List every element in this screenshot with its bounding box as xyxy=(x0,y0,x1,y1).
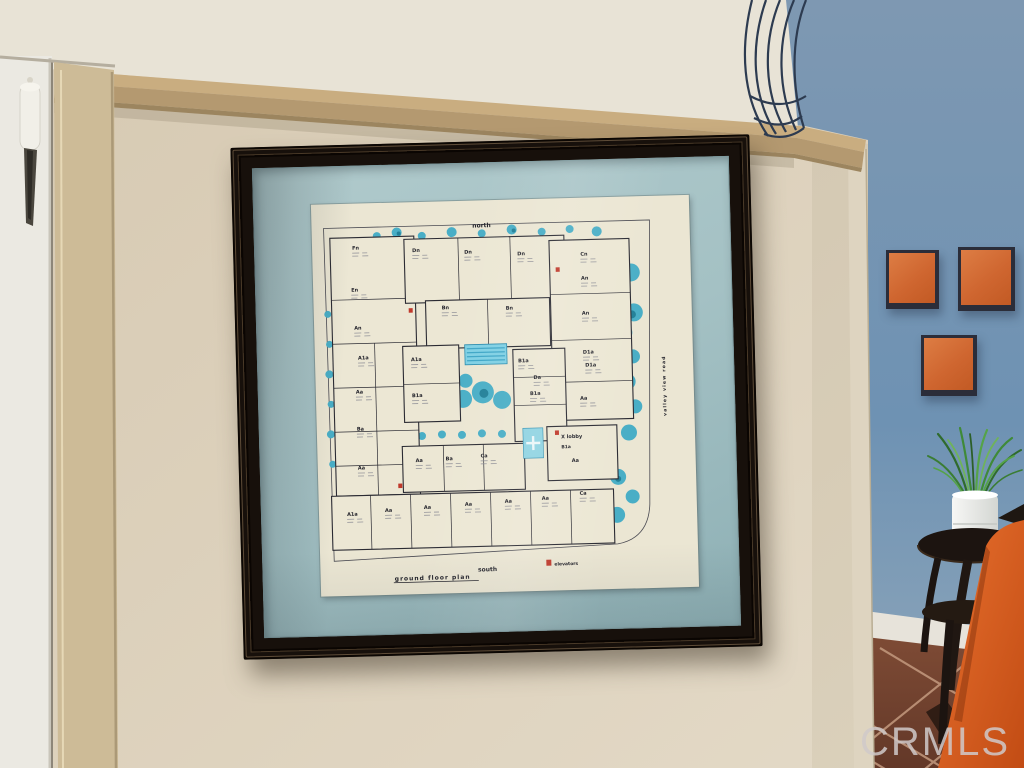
svg-text:Dn: Dn xyxy=(464,250,472,256)
svg-text:Ba: Ba xyxy=(357,426,364,432)
elevator-legend-icon xyxy=(546,560,551,566)
svg-text:Aa: Aa xyxy=(416,458,423,464)
svg-text:Cn: Cn xyxy=(580,252,588,258)
svg-text:An: An xyxy=(354,325,362,331)
svg-text:Ba: Ba xyxy=(446,456,453,462)
lobby-sub-label: B1a xyxy=(561,444,571,450)
elevator-icon xyxy=(556,267,560,272)
svg-text:Aa: Aa xyxy=(358,465,365,471)
svg-text:Fn: Fn xyxy=(352,246,360,252)
svg-text:Aa: Aa xyxy=(424,505,431,511)
framed-floor-plan: north south elevators ground floor plan … xyxy=(230,134,762,659)
courtyard xyxy=(523,428,544,459)
svg-text:D1a: D1a xyxy=(583,349,594,355)
svg-text:A1a: A1a xyxy=(347,512,358,518)
svg-text:B1a: B1a xyxy=(412,393,423,399)
svg-text:Bn: Bn xyxy=(442,305,450,311)
wall-art-orange-square-1 xyxy=(886,250,939,309)
elevator-icon xyxy=(555,430,559,435)
svg-text:Ca: Ca xyxy=(480,453,487,459)
svg-text:Bn: Bn xyxy=(506,306,514,312)
svg-text:Aa: Aa xyxy=(385,508,392,514)
svg-text:En: En xyxy=(351,288,359,294)
svg-text:B1a: B1a xyxy=(518,358,529,364)
svg-text:An: An xyxy=(582,311,590,317)
furniture-group xyxy=(860,400,1024,768)
door-frame xyxy=(54,62,118,768)
watermark: CRMLS xyxy=(860,720,1010,765)
svg-text:Aa: Aa xyxy=(542,496,549,502)
south-label: south xyxy=(478,566,497,573)
svg-text:A1a: A1a xyxy=(411,357,422,363)
svg-text:Aa: Aa xyxy=(505,499,512,505)
photo-scene: north south elevators ground floor plan … xyxy=(0,0,1024,768)
wall-art-orange-square-3 xyxy=(921,335,977,396)
svg-text:Da: Da xyxy=(533,375,541,381)
svg-text:Aa: Aa xyxy=(580,396,587,402)
svg-text:Aa: Aa xyxy=(356,389,363,395)
pool xyxy=(465,344,508,365)
floor-plan-paper: north south elevators ground floor plan … xyxy=(311,195,699,597)
svg-text:Aa: Aa xyxy=(465,502,472,508)
road-label: valley view road xyxy=(661,355,669,416)
north-label: north xyxy=(472,222,491,229)
elevator-icon xyxy=(409,308,413,313)
svg-text:Ca: Ca xyxy=(579,491,586,497)
svg-text:An: An xyxy=(581,276,589,282)
elevators-label: elevators xyxy=(554,561,578,568)
svg-text:A1a: A1a xyxy=(358,355,369,361)
lobby-label: X lobby xyxy=(561,434,583,441)
svg-text:Dn: Dn xyxy=(412,248,420,254)
wall-art-orange-square-2 xyxy=(958,247,1015,311)
svg-text:B1a: B1a xyxy=(530,391,541,397)
lobby-unit-label: Aa xyxy=(572,458,579,464)
svg-text:Dn: Dn xyxy=(517,251,525,257)
svg-text:D1a: D1a xyxy=(585,362,596,368)
picture-mat: north south elevators ground floor plan … xyxy=(252,156,741,638)
elevator-icon xyxy=(398,483,402,488)
